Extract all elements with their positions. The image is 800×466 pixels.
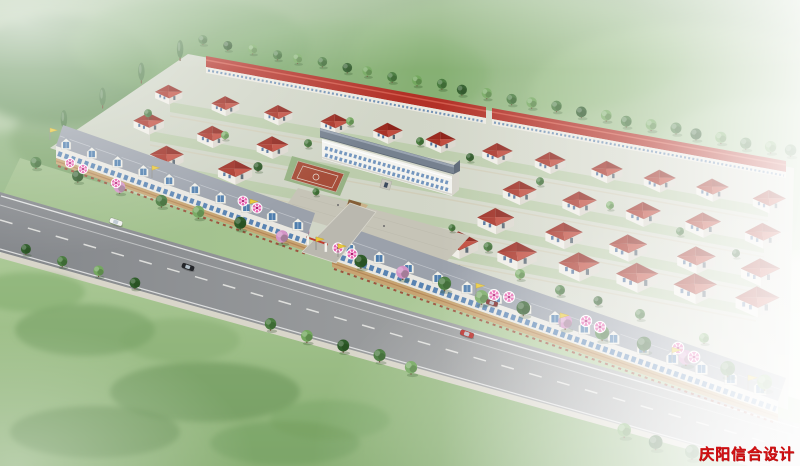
aerial-rendering-canvas: 庆阳信合设计 — [0, 0, 800, 466]
haze-overlay — [0, 0, 800, 466]
watermark-text: 庆阳信合设计 — [699, 443, 795, 464]
aerial-rendering — [0, 0, 800, 466]
